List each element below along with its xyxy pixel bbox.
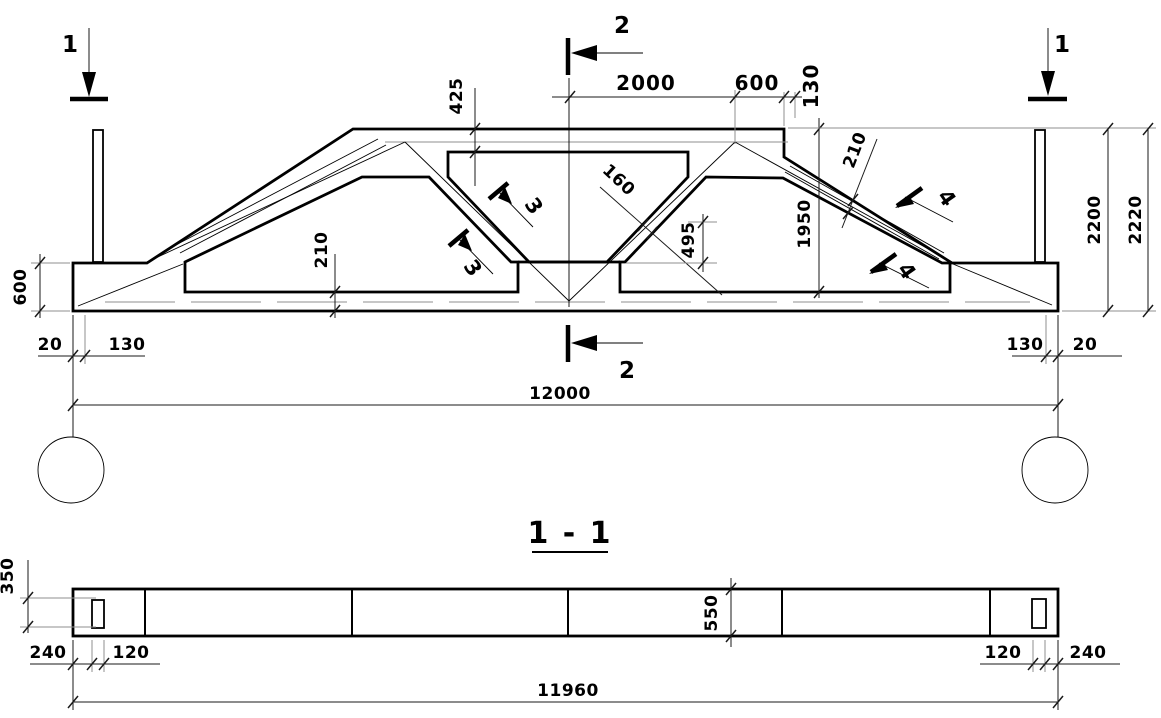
- section-marker-1-left: 1: [62, 28, 108, 99]
- dim-160: 160: [598, 160, 639, 200]
- marker-4-upper-label: 4: [933, 185, 961, 211]
- marker-2-bottom-label: 2: [619, 358, 635, 384]
- grid-axis-circle-right: [1022, 437, 1088, 503]
- section-marker-2-top: 2: [568, 13, 643, 75]
- dim-20-left: 20: [38, 335, 63, 355]
- drawing-sheet: 2000 600 130 425 160 495 1950 210: [0, 0, 1161, 718]
- section-marker-1-right: 1: [1028, 28, 1070, 99]
- marker-3-upper-label: 3: [520, 193, 548, 219]
- section-marker-3-upper: 3: [489, 183, 548, 227]
- dim-2000: 2000: [616, 71, 676, 95]
- marker-2-top-label: 2: [614, 13, 630, 39]
- dim-240-left: 240: [30, 643, 67, 663]
- dim-130-right: 130: [1007, 335, 1044, 355]
- dim-240-right: 240: [1070, 643, 1107, 663]
- dim-130-left: 130: [109, 335, 146, 355]
- dim-210-bottom: 210: [312, 232, 332, 269]
- opening-center: [448, 152, 688, 262]
- section-marker-2-bottom: 2: [568, 325, 643, 384]
- dim-495: 495: [679, 222, 699, 259]
- loop-section-left: [92, 600, 104, 628]
- marker-1-left-label: 1: [62, 32, 78, 58]
- loop-section-right: [1032, 599, 1046, 628]
- lifting-loop-left: [93, 130, 103, 262]
- dim-600-top: 600: [735, 71, 780, 95]
- dim-120-right: 120: [985, 643, 1022, 663]
- section-1-1-view: 1 - 1 350 550: [0, 516, 1120, 710]
- dim-600-left: 600: [11, 269, 31, 306]
- dim-1950: 1950: [795, 199, 815, 248]
- marker-4-lower-label: 4: [893, 258, 921, 284]
- marker-1-right-label: 1: [1054, 32, 1070, 58]
- elevation-dimensions: 2000 600 130 425 160 495 1950 210: [11, 64, 1156, 437]
- dim-11960: 11960: [537, 681, 599, 701]
- girder-outline: [73, 129, 1058, 311]
- elevation-view: 2000 600 130 425 160 495 1950 210: [11, 13, 1156, 503]
- grid-axis-circle-left: [38, 437, 104, 503]
- dim-350: 350: [0, 558, 18, 595]
- dim-12000: 12000: [529, 384, 591, 404]
- dim-130-top: 130: [799, 64, 823, 109]
- marker-3-lower-label: 3: [459, 255, 487, 281]
- dim-425: 425: [447, 78, 467, 115]
- dim-2200: 2200: [1085, 195, 1105, 244]
- truss-drawing-canvas: 2000 600 130 425 160 495 1950 210: [0, 0, 1161, 718]
- section-body: [73, 589, 1058, 636]
- section-marker-4-lower: 4: [869, 254, 929, 288]
- section-dimensions: 350 550 240 120 120 240 11960: [0, 558, 1120, 711]
- section-title: 1 - 1: [527, 516, 612, 551]
- section-division-lines: [145, 589, 990, 636]
- dim-550: 550: [702, 595, 722, 632]
- dim-120-left: 120: [113, 643, 150, 663]
- lifting-loop-right: [1035, 130, 1045, 262]
- dim-20-right: 20: [1073, 335, 1098, 355]
- dim-2220: 2220: [1126, 195, 1146, 244]
- section-marker-4-upper: 4: [895, 185, 961, 222]
